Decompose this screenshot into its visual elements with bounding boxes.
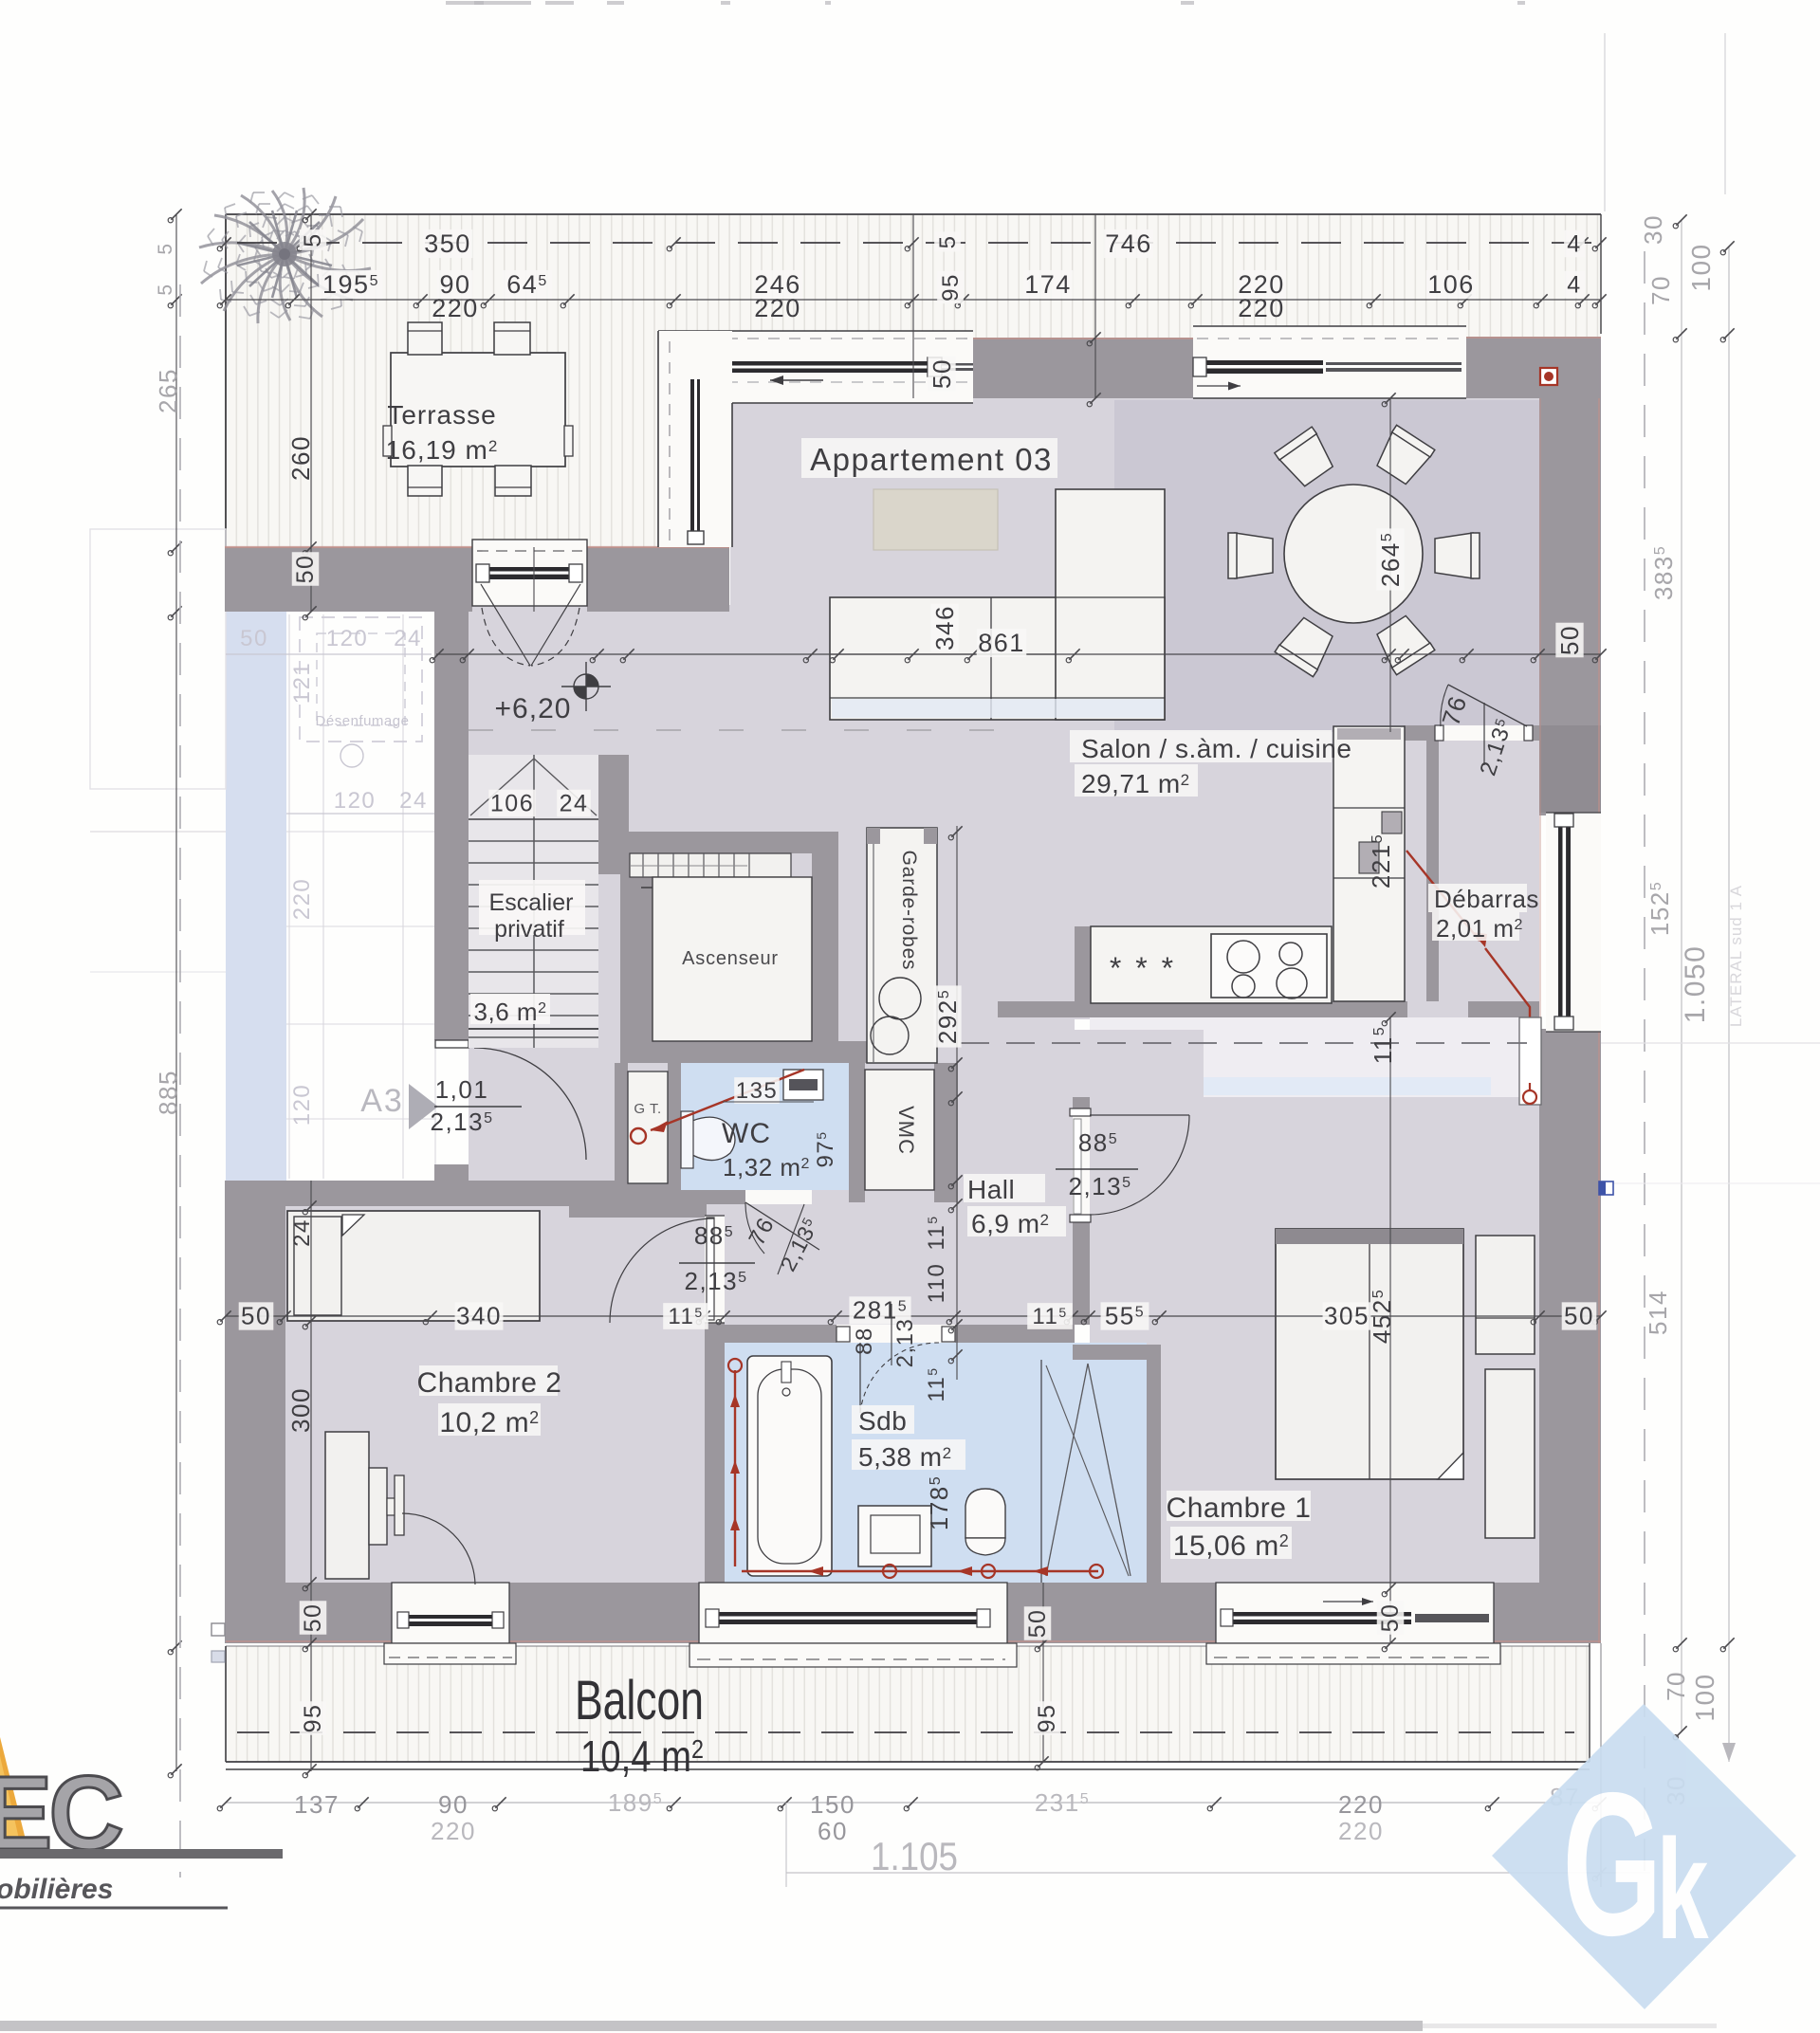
svg-text:A3: A3 <box>360 1083 404 1119</box>
svg-text:350: 350 <box>424 229 471 258</box>
svg-text:746: 746 <box>1105 229 1152 258</box>
svg-text:5: 5 <box>935 235 961 249</box>
svg-text:VMC: VMC <box>894 1106 918 1155</box>
svg-text:Escalier: Escalier <box>489 889 574 916</box>
svg-text:50: 50 <box>1564 1302 1594 1330</box>
svg-text:Balcon: Balcon <box>575 1670 704 1731</box>
svg-text:861: 861 <box>978 629 1025 657</box>
svg-text:5: 5 <box>300 232 326 247</box>
svg-text:50: 50 <box>241 1302 271 1330</box>
svg-text:29,71 m2: 29,71 m2 <box>1081 769 1190 798</box>
svg-text:70: 70 <box>1662 1671 1690 1701</box>
svg-text:120: 120 <box>326 626 369 651</box>
svg-text:* * *: * * * <box>1110 951 1176 985</box>
svg-text:50: 50 <box>300 1603 326 1633</box>
svg-text:135: 135 <box>736 1078 779 1104</box>
svg-text:15,06 m2: 15,06 m2 <box>1173 1530 1289 1562</box>
svg-text:5: 5 <box>155 242 176 254</box>
svg-text:50: 50 <box>240 626 268 651</box>
svg-text:305: 305 <box>1324 1302 1370 1330</box>
svg-text:90: 90 <box>438 1790 469 1819</box>
svg-text:50: 50 <box>292 555 319 584</box>
svg-text:24: 24 <box>399 788 428 814</box>
svg-text:220: 220 <box>1238 294 1285 322</box>
svg-text:100: 100 <box>1690 1673 1719 1721</box>
svg-text:G: G <box>1562 1750 1662 1979</box>
svg-text:220: 220 <box>754 294 801 322</box>
svg-text:220: 220 <box>289 878 315 921</box>
svg-text:120: 120 <box>334 788 377 814</box>
svg-text:Appartement 03: Appartement 03 <box>810 442 1053 477</box>
svg-text:300: 300 <box>286 1387 315 1433</box>
svg-text:346: 346 <box>930 605 959 650</box>
svg-text:1,01: 1,01 <box>435 1075 489 1104</box>
svg-text:885: 885 <box>154 1070 182 1115</box>
svg-text:privatif: privatif <box>494 916 564 943</box>
svg-text:95: 95 <box>300 1704 326 1733</box>
svg-text:95: 95 <box>938 273 964 302</box>
svg-text:60: 60 <box>818 1817 848 1845</box>
svg-text:220: 220 <box>1338 1817 1384 1845</box>
svg-text:1.105: 1.105 <box>871 1834 958 1878</box>
svg-text:220: 220 <box>431 1817 476 1845</box>
svg-text:Ascenseur: Ascenseur <box>682 948 779 969</box>
svg-text:5,38 m2: 5,38 m2 <box>858 1442 952 1472</box>
svg-text:220: 220 <box>432 294 479 322</box>
svg-text:24: 24 <box>289 1218 315 1247</box>
svg-text:+6,20: +6,20 <box>495 693 572 724</box>
svg-text:2,01 m2: 2,01 m2 <box>1436 914 1523 943</box>
svg-text:5: 5 <box>155 283 176 295</box>
svg-text:WC: WC <box>722 1118 771 1149</box>
svg-text:24: 24 <box>394 626 422 651</box>
svg-text:1,32 m2: 1,32 m2 <box>723 1153 810 1181</box>
svg-text:260: 260 <box>286 435 315 481</box>
svg-text:220: 220 <box>1338 1790 1384 1819</box>
svg-text:2,13: 2,13 <box>892 1318 918 1368</box>
svg-text:100: 100 <box>1686 243 1716 291</box>
svg-text:Salon / s.àm. / cuisine: Salon / s.àm. / cuisine <box>1081 734 1351 763</box>
svg-text:106: 106 <box>490 790 534 816</box>
svg-text:106: 106 <box>1427 270 1475 299</box>
svg-text:10,2 m2: 10,2 m2 <box>439 1407 539 1438</box>
svg-text:50: 50 <box>928 358 956 389</box>
svg-text:Chambre 2: Chambre 2 <box>417 1367 562 1399</box>
svg-text:137: 137 <box>294 1790 340 1819</box>
svg-text:30: 30 <box>1639 214 1667 245</box>
svg-text:Débarras: Débarras <box>1434 885 1539 913</box>
svg-text:24: 24 <box>560 790 589 816</box>
svg-text:Garde-robes: Garde-robes <box>898 851 920 971</box>
svg-text:50: 50 <box>1024 1609 1051 1639</box>
svg-text:88: 88 <box>852 1327 877 1355</box>
svg-text:265: 265 <box>154 368 182 413</box>
svg-text:6,9 m2: 6,9 m2 <box>971 1209 1050 1238</box>
svg-text:50: 50 <box>1555 625 1584 655</box>
svg-text:Hall: Hall <box>967 1175 1015 1204</box>
svg-text:obilières: obilières <box>0 1874 113 1905</box>
svg-text:514: 514 <box>1644 1290 1672 1335</box>
svg-text:4: 4 <box>1567 230 1581 257</box>
svg-text:Sdb: Sdb <box>858 1406 907 1436</box>
svg-text:70: 70 <box>1646 275 1675 305</box>
svg-text:16,19 m2: 16,19 m2 <box>386 435 499 465</box>
svg-text:174: 174 <box>1024 270 1072 299</box>
svg-text:340: 340 <box>456 1302 502 1330</box>
svg-text:120: 120 <box>289 1084 315 1126</box>
svg-text:50: 50 <box>1377 1603 1404 1633</box>
svg-text:Désenfumage: Désenfumage <box>316 713 410 729</box>
svg-text:Terrasse: Terrasse <box>387 400 496 430</box>
svg-text:4: 4 <box>1567 271 1581 298</box>
svg-text:G T.: G T. <box>634 1101 661 1117</box>
svg-text:110: 110 <box>924 1263 949 1304</box>
svg-text:95: 95 <box>1034 1704 1060 1733</box>
svg-text:3,6 m2: 3,6 m2 <box>474 998 547 1026</box>
svg-text:121: 121 <box>289 662 315 705</box>
svg-text:Chambre 1: Chambre 1 <box>1167 1493 1312 1524</box>
svg-text:10,4 m2: 10,4 m2 <box>580 1731 704 1781</box>
svg-text:LATERAL sud 1 A: LATERAL sud 1 A <box>1727 885 1745 1027</box>
svg-text:150: 150 <box>810 1790 855 1819</box>
svg-text:k: k <box>1656 1809 1708 1969</box>
svg-text:1.050: 1.050 <box>1680 945 1711 1024</box>
